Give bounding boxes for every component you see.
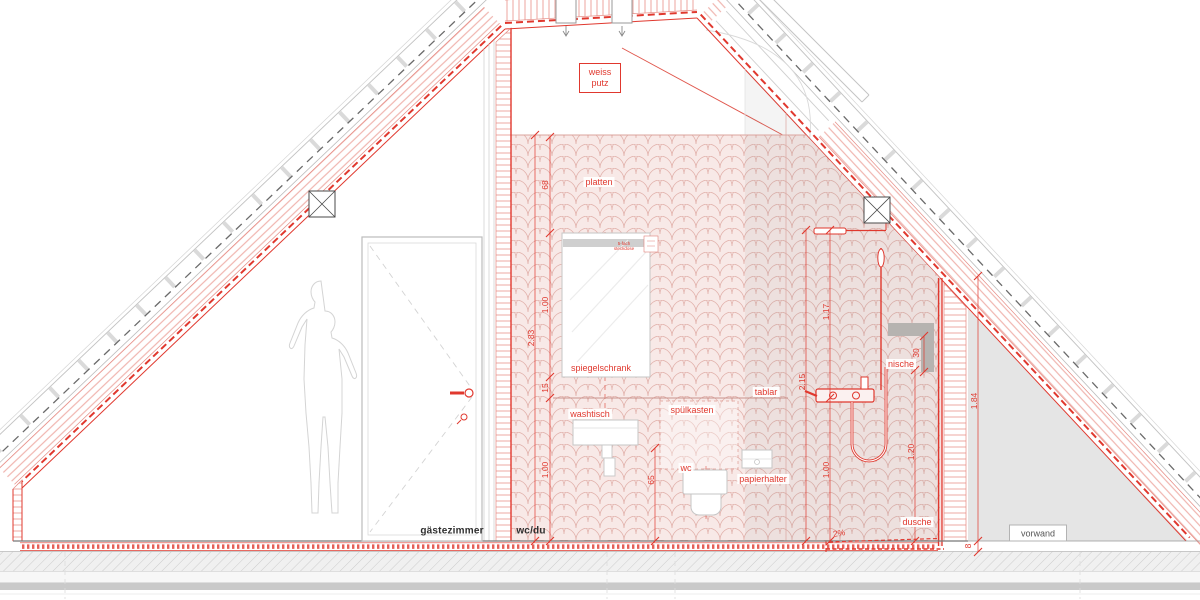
person-silhouette [289,281,356,513]
label-weiss-putz: weiss putz [579,63,621,93]
dim-niche-size: 30 [911,348,921,357]
label-nische: nische [886,359,916,369]
putz-label: putz [591,78,608,89]
label-dusche: dusche [900,517,933,527]
shower-mixer [816,389,874,402]
ridge-hanger-right [612,0,632,23]
label-vorwand: vorwand [1009,525,1067,542]
label-tablar: tablar [753,387,780,397]
floor-assembly [0,552,1200,600]
knee-wall [13,480,22,541]
label-spuelkasten: spülkasten [668,405,715,415]
label-wc: wc [679,463,694,473]
weiss-label: weiss [589,67,612,78]
socket-symbol [644,236,658,252]
label-papierhalter: papierhalter [737,474,789,484]
paper-holder [742,450,772,468]
dim-floor-slope: 2% [832,527,846,539]
label-wc-du: wc/du [516,526,545,537]
dim-mixer-height: 1.00 [821,462,831,479]
dim-vorwand-height: 1.84 [969,393,979,410]
label-platten: platten [583,177,614,187]
label-steckdose: 5-fach steckdose [614,241,634,251]
vorwand-text: vorwand [1021,528,1055,538]
dim-gap-cabinet-shelf: 15 [540,383,550,392]
label-gaestezimmer: gästezimmer [420,526,483,537]
dim-head-to-mixer: 1.17 [821,304,831,321]
dim-shower-height: 2.15 [797,374,807,391]
label-washtisch: washtisch [568,409,612,419]
ridge-hanger-left [556,0,576,23]
section-drawing-canvas: weiss putz platten spiegelschrank 5-fach… [0,0,1200,600]
ridge-flat-ceiling [505,0,697,36]
vorwand-section [944,283,966,541]
door [362,237,482,541]
dim-wall-total: 2.83 [526,330,536,347]
hand-shower [878,249,884,267]
dim-tile-band-top: 68 [540,180,550,189]
dim-cabinet-height: 1.00 [540,297,550,314]
steckdose-line2: steckdose [614,246,634,251]
dim-niche-bottom: 1.20 [906,444,916,461]
label-spiegelschrank: spiegelschrank [571,363,631,373]
hanger-arrows [563,26,625,36]
dim-shelf-height: 1.00 [540,462,550,479]
shower-wall [939,278,967,546]
dim-basin-clearance: 65 [646,475,656,484]
dim-floor-thickness: 8 [963,544,973,549]
